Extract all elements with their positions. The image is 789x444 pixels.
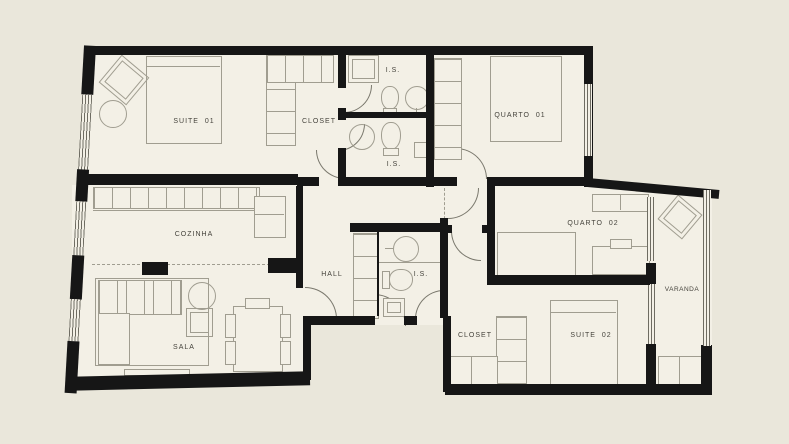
- cabinet-divider: [620, 194, 621, 210]
- wall-segment: [443, 275, 448, 285]
- room-label-suite-01: SUITE 01: [158, 118, 230, 126]
- window: [648, 284, 656, 344]
- wall-segment: [296, 186, 303, 262]
- wall-segment: [297, 177, 319, 186]
- balcony-cabinet-icon: [658, 356, 702, 386]
- kitchen-counter-icon: [93, 187, 260, 209]
- balcony-cabinet-divider: [679, 356, 680, 384]
- room-label-sala: SALA: [166, 344, 202, 352]
- room-label-suite-02: SUITE 02: [560, 332, 622, 340]
- sofa-icon: [98, 280, 182, 315]
- chair-icon: [225, 314, 236, 338]
- chair-icon: [225, 341, 236, 365]
- floor-plan: SUITE 01 CLOSET I.S. I.S. QUARTO 01 COZI…: [0, 0, 789, 444]
- room-label-hall: HALL: [316, 271, 348, 279]
- room-label-is-hall: I.S.: [410, 271, 432, 279]
- wall-pillar: [142, 262, 168, 275]
- wall-segment: [404, 316, 417, 325]
- washbasin-stand: [385, 248, 393, 249]
- wardrobe-shelves-icon: [353, 233, 379, 319]
- wall-segment: [350, 223, 443, 232]
- pouf-icon: [99, 100, 127, 128]
- window: [584, 84, 592, 156]
- wall-segment: [70, 255, 84, 300]
- bed-icon: [490, 56, 562, 142]
- toilet-tank: [383, 148, 399, 156]
- window: [73, 201, 86, 255]
- wardrobe-shelves-icon: [496, 316, 527, 386]
- kitchen-counter-icon: [254, 196, 286, 238]
- desk-item-icon: [610, 239, 632, 249]
- wall-segment: [443, 316, 451, 392]
- washbasin-icon: [393, 236, 419, 262]
- room-label-is-upper: I.S.: [382, 67, 404, 75]
- wall-segment: [646, 344, 656, 392]
- bed-icon: [146, 56, 222, 144]
- counter-divider: [254, 214, 284, 215]
- shower-icon: [348, 55, 379, 83]
- room-label-closet-suite-02: CLOSET: [452, 332, 498, 340]
- wall-segment: [443, 177, 457, 186]
- shower-tray: [352, 59, 375, 79]
- wall-segment: [341, 177, 443, 186]
- chair-icon: [280, 314, 291, 338]
- closet-divider: [471, 356, 472, 384]
- wall-segment: [445, 384, 712, 395]
- cabinet-inner: [387, 302, 401, 313]
- bed-pillow-line: [551, 312, 616, 313]
- wall-segment: [338, 46, 346, 88]
- wall-segment: [440, 218, 448, 318]
- wall-segment: [303, 316, 375, 325]
- balcony-rail-icon: [703, 190, 711, 346]
- wall-segment: [482, 225, 488, 233]
- washbasin-icon: [349, 124, 375, 150]
- armchair-icon: [186, 308, 213, 337]
- room-label-quarto-01: QUARTO 01: [488, 112, 552, 120]
- sofa-chaise-icon: [98, 313, 130, 365]
- bathroom-cabinet-icon: [383, 298, 405, 317]
- chair-icon: [245, 298, 270, 309]
- toilet-icon: [381, 86, 399, 110]
- window: [68, 299, 80, 341]
- open-boundary: [92, 264, 270, 265]
- partition-line: [379, 262, 441, 263]
- chair-icon: [280, 341, 291, 365]
- wall-segment: [338, 112, 434, 118]
- wall-segment: [487, 177, 586, 186]
- wardrobe-shelves-icon: [266, 55, 334, 83]
- room-label-cozinha: COZINHA: [166, 231, 222, 239]
- wall-segment: [296, 262, 303, 288]
- room-label-varanda: VARANDA: [658, 286, 706, 293]
- desk-icon: [592, 246, 650, 275]
- wall-segment: [426, 46, 434, 187]
- armchair-seat: [190, 312, 209, 333]
- room-label-is-middle: I.S.: [383, 161, 405, 169]
- closet-bench-icon: [447, 356, 498, 386]
- room-label-closet-suite-01: CLOSET: [296, 118, 342, 126]
- bed-icon: [497, 232, 576, 276]
- wall-segment: [448, 225, 452, 233]
- dining-table-icon: [233, 306, 283, 372]
- wardrobe-shelves-icon: [434, 58, 462, 160]
- coffee-table-icon: [188, 282, 216, 310]
- toilet-icon: [381, 122, 401, 150]
- window: [647, 197, 655, 261]
- wall-segment: [487, 275, 650, 285]
- wall-segment: [487, 186, 495, 283]
- wall-line: [377, 232, 379, 316]
- wall-segment: [84, 174, 298, 185]
- bed-pillow-line: [147, 66, 220, 67]
- room-label-quarto-02: QUARTO 02: [560, 220, 626, 228]
